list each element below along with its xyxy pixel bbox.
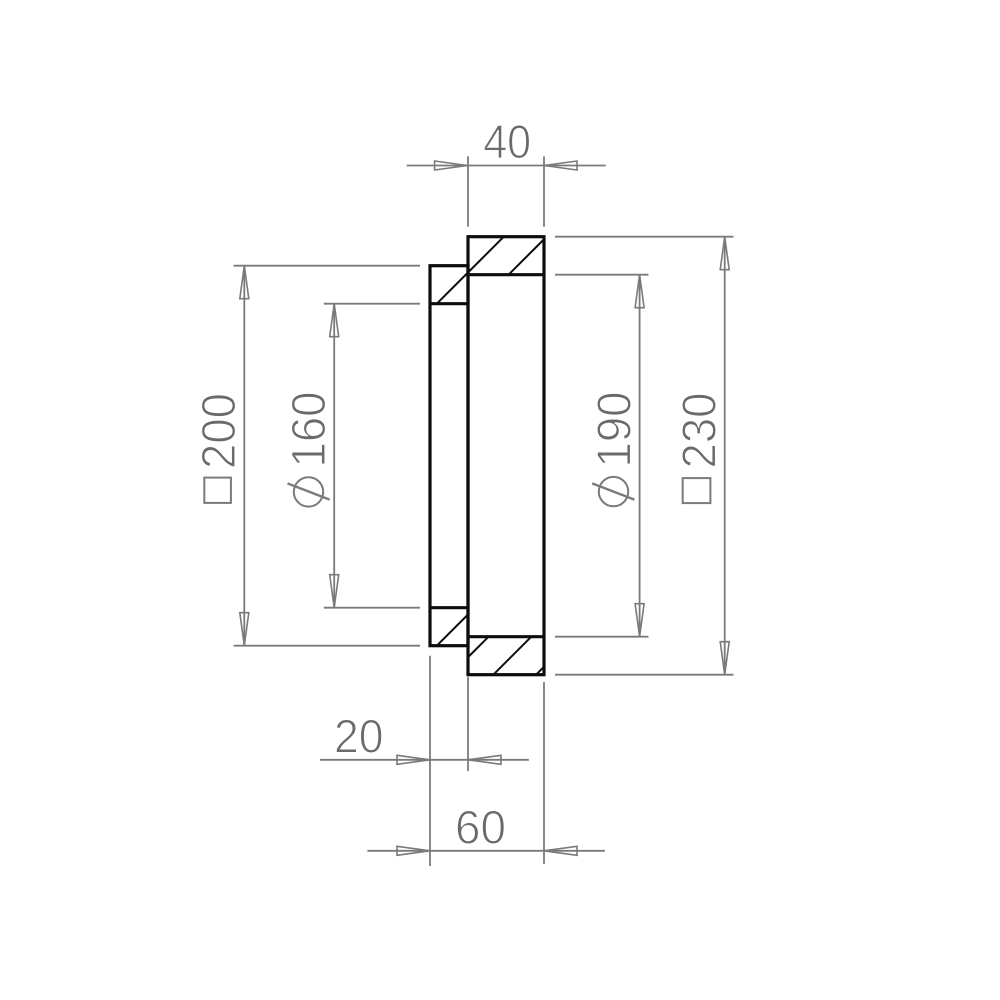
svg-text:200: 200 xyxy=(193,393,246,469)
svg-text:60: 60 xyxy=(455,801,506,854)
svg-text:230: 230 xyxy=(674,393,727,469)
svg-text:190: 190 xyxy=(588,392,641,468)
svg-text:20: 20 xyxy=(334,710,384,763)
svg-text:160: 160 xyxy=(283,392,336,468)
svg-text:40: 40 xyxy=(483,116,531,169)
